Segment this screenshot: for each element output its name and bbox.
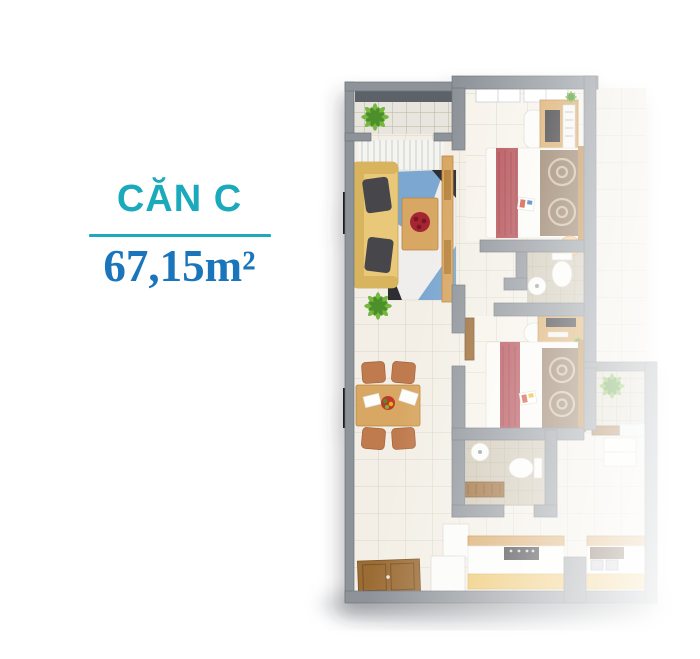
magazine-2 [519, 391, 537, 406]
unit-title: CĂN C [62, 180, 297, 220]
unit-area: 67,15m² [62, 243, 297, 290]
toilet-1 [552, 253, 572, 287]
plant-living [364, 292, 392, 320]
dining-chair [361, 361, 385, 384]
dining-chair [391, 427, 415, 450]
refrigerator [431, 556, 465, 592]
entrance [357, 559, 420, 595]
media-shelf [442, 156, 453, 302]
kitchen-counter-right [587, 536, 645, 589]
sink-2 [471, 443, 489, 461]
plant-balcony-rear [599, 373, 624, 398]
toilet-2 [509, 458, 542, 478]
balcony-ledge [620, 424, 645, 436]
bed-2 [486, 340, 586, 432]
balcony-railing [355, 91, 453, 102]
kitchen-counter-left [468, 536, 564, 589]
unit-label: CĂN C 67,15m² [62, 180, 297, 290]
floor-plan-page: CĂN C 67,15m² [0, 0, 700, 654]
bed-1 [486, 146, 586, 240]
title-divider [89, 234, 271, 237]
sofa [352, 162, 398, 288]
sink-1 [528, 277, 546, 295]
entrance-door [357, 559, 420, 595]
bath-mat [464, 482, 504, 497]
floor-plan-figure [0, 0, 700, 654]
bedroom-2-door-leaf [465, 318, 474, 360]
dining-chair [361, 427, 386, 450]
kitchen-tall-cabinet [443, 524, 469, 558]
cooktop [504, 547, 539, 560]
apartment-plan [343, 76, 657, 603]
coffee-table [402, 198, 438, 250]
dining-chair [391, 361, 416, 384]
plant-balcony-front [361, 103, 389, 131]
magazine-1 [517, 197, 535, 211]
backsplash [590, 547, 624, 559]
dining-table [356, 385, 420, 426]
